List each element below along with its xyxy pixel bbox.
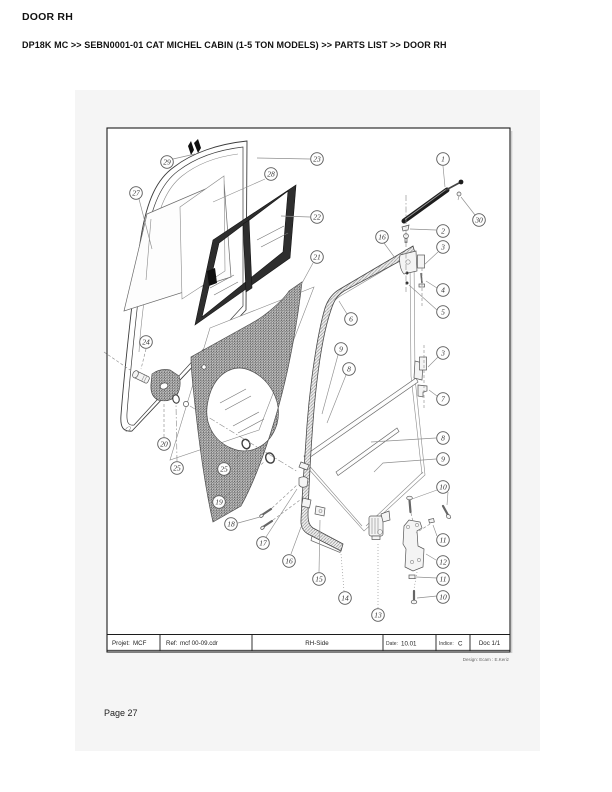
callout-16: 16 (283, 555, 296, 568)
svg-text:15: 15 (315, 575, 323, 584)
titleblock-indice-label: Indice: (439, 641, 454, 647)
titleblock-project-value: MCF (133, 640, 147, 647)
svg-text:10: 10 (439, 593, 447, 602)
svg-text:16: 16 (378, 233, 386, 242)
callout-27: 27 (130, 187, 143, 200)
callout-1: 1 (437, 153, 450, 166)
svg-text:4: 4 (441, 286, 445, 295)
titleblock-ref-value: mcf 00-09.cdr (180, 640, 218, 647)
svg-text:22: 22 (313, 213, 321, 222)
svg-text:24: 24 (142, 338, 150, 347)
callout-11: 11 (437, 534, 450, 547)
callout-20: 20 (158, 438, 171, 451)
page-number: Page 27 (104, 708, 138, 718)
svg-text:16: 16 (285, 557, 293, 566)
callout-24: 24 (140, 336, 153, 349)
callout-14: 14 (339, 592, 352, 605)
svg-text:7: 7 (441, 395, 445, 404)
svg-text:30: 30 (474, 216, 483, 225)
svg-text:29: 29 (163, 158, 171, 167)
svg-text:2: 2 (441, 227, 445, 236)
svg-text:5: 5 (441, 308, 445, 317)
titleblock-project-label: Projet: (112, 640, 130, 647)
design-credit: Design: Ecam : E.Keriz (463, 657, 510, 662)
callout-12: 12 (437, 556, 450, 569)
svg-text:3: 3 (440, 243, 445, 252)
svg-text:25: 25 (220, 465, 228, 474)
svg-text:25: 25 (173, 464, 181, 473)
callout-25: 25 (218, 463, 231, 476)
callout-5: 5 (437, 306, 450, 319)
svg-text:14: 14 (341, 594, 349, 603)
callout-9: 9 (437, 453, 450, 466)
svg-text:23: 23 (313, 155, 321, 164)
callout-3: 3 (437, 241, 450, 254)
callout-6: 6 (345, 313, 358, 326)
svg-text:18: 18 (227, 520, 235, 529)
callout-21: 21 (311, 251, 324, 264)
svg-text:28: 28 (267, 170, 275, 179)
svg-text:17: 17 (259, 539, 267, 548)
callout-4: 4 (437, 284, 450, 297)
callout-25: 25 (171, 462, 184, 475)
panel-hole (202, 365, 206, 369)
svg-text:21: 21 (313, 253, 321, 262)
svg-text:10: 10 (439, 483, 447, 492)
callout-18: 18 (225, 518, 238, 531)
panel-hole (183, 401, 188, 406)
callout-7: 7 (437, 393, 450, 406)
callout-2: 2 (437, 225, 450, 238)
callout-9: 9 (335, 343, 348, 356)
svg-text:9: 9 (441, 455, 445, 464)
svg-text:8: 8 (347, 365, 351, 374)
callout-10: 10 (437, 591, 450, 604)
callout-28: 28 (265, 168, 278, 181)
svg-text:1: 1 (441, 155, 445, 164)
svg-text:13: 13 (374, 611, 382, 620)
callout-30: 30 (473, 214, 486, 227)
callout-15: 15 (313, 573, 326, 586)
callout-22: 22 (311, 211, 324, 224)
svg-text:20: 20 (160, 440, 168, 449)
svg-text:9: 9 (339, 345, 343, 354)
svg-text:3: 3 (440, 349, 445, 358)
svg-text:6: 6 (349, 315, 353, 324)
callout-13: 13 (372, 609, 385, 622)
callout-10: 10 (437, 481, 450, 494)
svg-text:11: 11 (440, 575, 447, 584)
svg-text:19: 19 (215, 498, 223, 507)
callout-8: 8 (343, 363, 356, 376)
svg-text:11: 11 (440, 536, 447, 545)
titleblock-date-label: Date: (386, 641, 398, 647)
callout-23: 23 (311, 153, 324, 166)
callout-3: 3 (437, 347, 450, 360)
callout-29: 29 (161, 156, 174, 169)
window-lock-plate (400, 251, 417, 274)
svg-text:12: 12 (439, 558, 447, 567)
titleblock-doc-label: Doc 1/1 (479, 640, 501, 647)
titleblock-view-label: RH-Side (305, 640, 329, 647)
callout-11: 11 (437, 573, 450, 586)
callout-17: 17 (257, 537, 270, 550)
callout-8: 8 (437, 432, 450, 445)
titleblock-indice-value: C (458, 641, 463, 648)
callout-16: 16 (376, 231, 389, 244)
titleblock-ref-label: Ref: (166, 640, 178, 647)
exploded-parts-diagram: 1302163456379889101112111013141516171819… (0, 0, 612, 792)
svg-text:27: 27 (132, 189, 140, 198)
callout-19: 19 (213, 496, 226, 509)
svg-text:8: 8 (441, 434, 445, 443)
titleblock-date-value: 10.01 (401, 641, 417, 648)
